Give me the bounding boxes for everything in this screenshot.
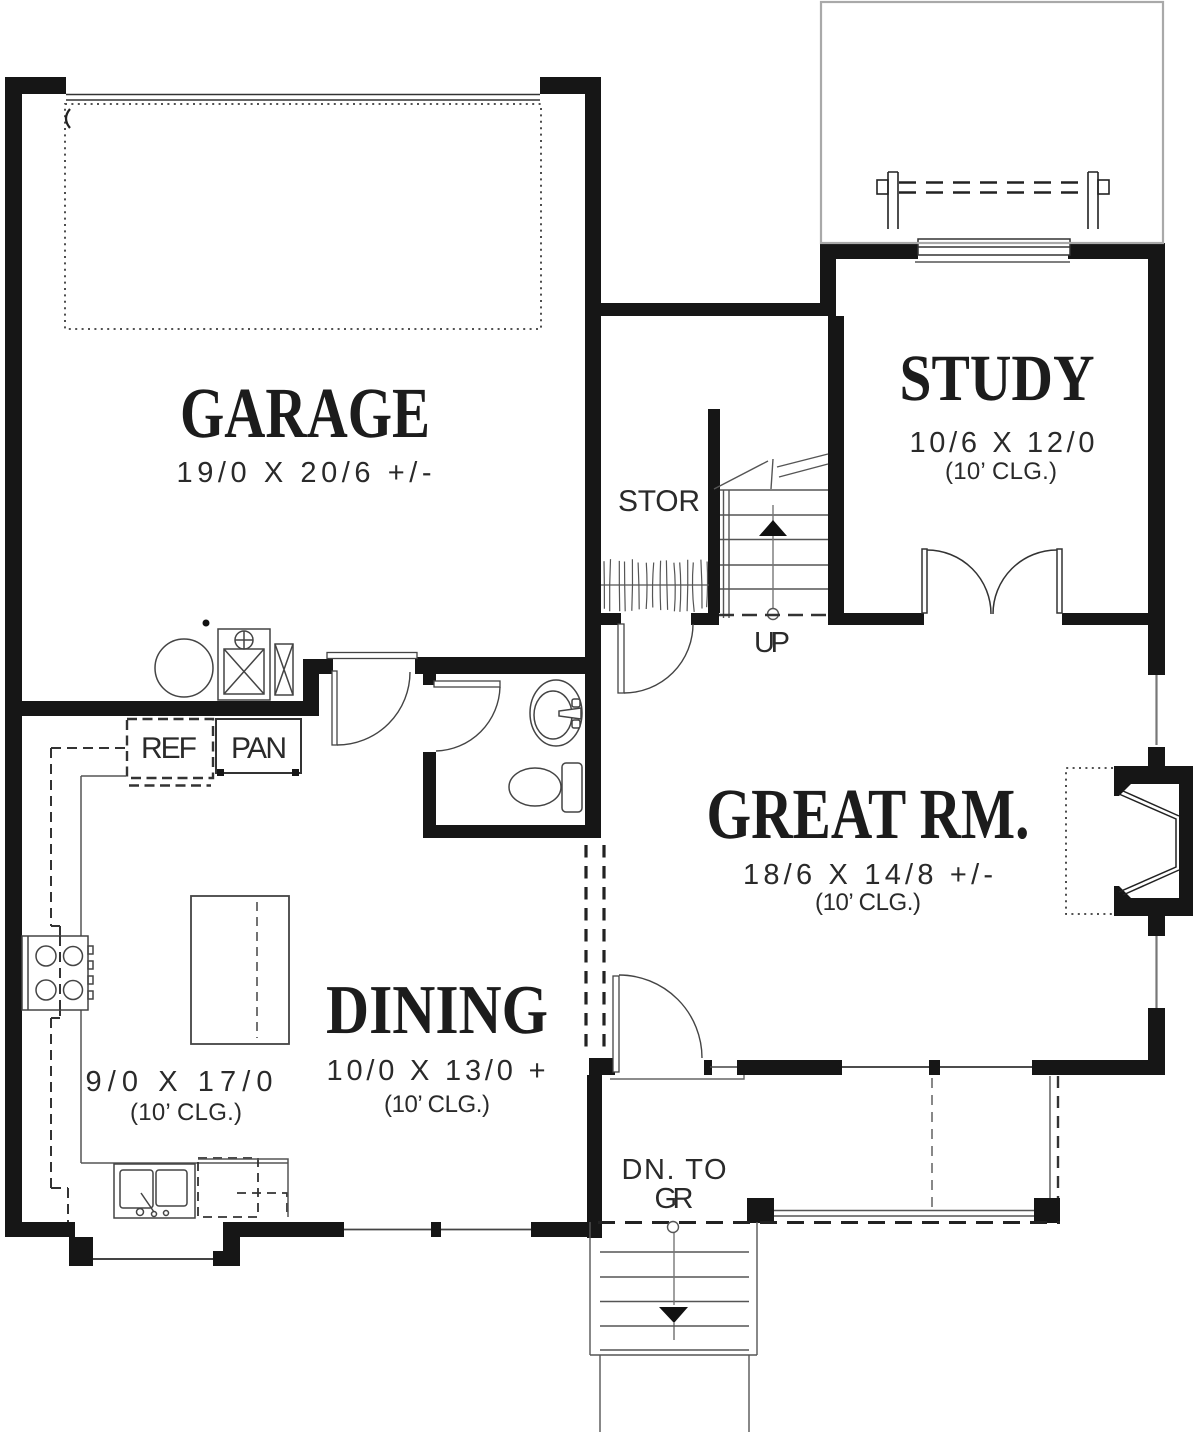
- svg-text:(10’ CLG.): (10’ CLG.): [945, 458, 1057, 485]
- svg-text:STOR: STOR: [618, 485, 700, 518]
- svg-text:(10’ CLG.): (10’ CLG.): [815, 889, 921, 916]
- svg-text:10/0 X 13/0 +: 10/0 X 13/0 +: [327, 1055, 546, 1087]
- svg-text:GREAT RM.: GREAT RM.: [707, 774, 1030, 854]
- svg-text:(10’ CLG.): (10’ CLG.): [384, 1091, 490, 1118]
- svg-text:REF: REF: [141, 732, 197, 765]
- svg-text:DINING: DINING: [326, 972, 548, 1049]
- svg-text:GARAGE: GARAGE: [180, 373, 430, 453]
- svg-text:(10’ CLG.): (10’ CLG.): [130, 1099, 242, 1126]
- svg-text:DN. TO: DN. TO: [622, 1154, 727, 1186]
- svg-text:10/6 X 12/0: 10/6 X 12/0: [910, 427, 1095, 459]
- svg-text:GR: GR: [655, 1183, 694, 1215]
- svg-text:UP: UP: [754, 627, 790, 659]
- svg-text:PAN: PAN: [231, 732, 287, 765]
- svg-text:STUDY: STUDY: [900, 342, 1095, 415]
